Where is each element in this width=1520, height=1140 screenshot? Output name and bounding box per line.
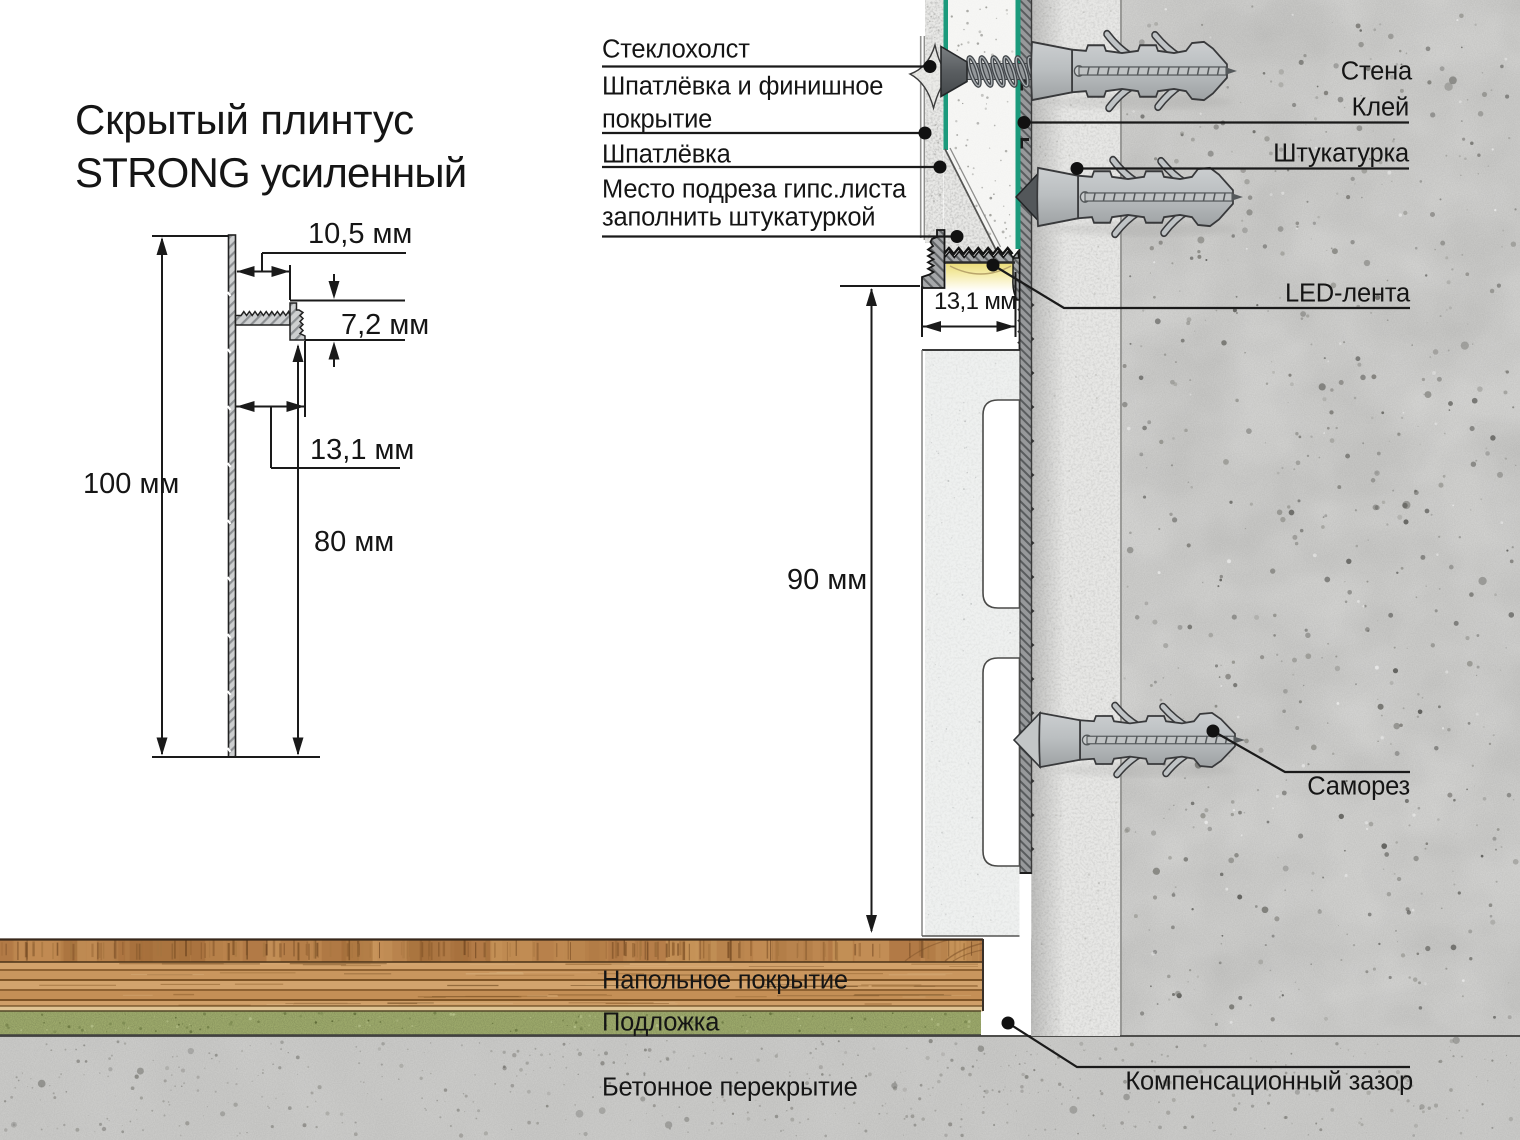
svg-text:Бетонное перекрытие: Бетонное перекрытие	[602, 1074, 858, 1102]
svg-text:Подложка: Подложка	[602, 1009, 720, 1037]
svg-text:Стена: Стена	[1341, 58, 1413, 86]
svg-text:80 мм: 80 мм	[314, 526, 394, 558]
svg-text:13,1 мм: 13,1 мм	[934, 288, 1016, 315]
svg-text:Стеклохолст: Стеклохолст	[602, 36, 750, 64]
svg-text:STRONG усиленный: STRONG усиленный	[75, 149, 466, 196]
svg-text:покрытие: покрытие	[602, 106, 712, 134]
svg-text:13,1 мм: 13,1 мм	[310, 434, 414, 466]
svg-text:Место подреза гипс.листа: Место подреза гипс.листа	[602, 176, 907, 204]
svg-text:Напольное покрытие: Напольное покрытие	[602, 967, 848, 995]
svg-text:90 мм: 90 мм	[787, 564, 867, 596]
svg-text:Клей: Клей	[1352, 94, 1409, 122]
svg-text:10,5 мм: 10,5 мм	[308, 218, 412, 250]
svg-text:Компенсационный зазор: Компенсационный зазор	[1125, 1068, 1413, 1096]
svg-text:LED-лента: LED-лента	[1285, 280, 1411, 308]
svg-text:Штукатурка: Штукатурка	[1273, 140, 1410, 168]
svg-text:Саморез: Саморез	[1307, 773, 1410, 801]
svg-text:100 мм: 100 мм	[83, 468, 179, 500]
svg-text:Скрытый плинтус: Скрытый плинтус	[75, 96, 414, 143]
svg-text:7,2 мм: 7,2 мм	[341, 309, 429, 341]
svg-text:Шпатлёвка и финишное: Шпатлёвка и финишное	[602, 73, 883, 101]
svg-text:заполнить штукатуркой: заполнить штукатуркой	[602, 204, 875, 232]
svg-text:Шпатлёвка: Шпатлёвка	[602, 141, 732, 169]
